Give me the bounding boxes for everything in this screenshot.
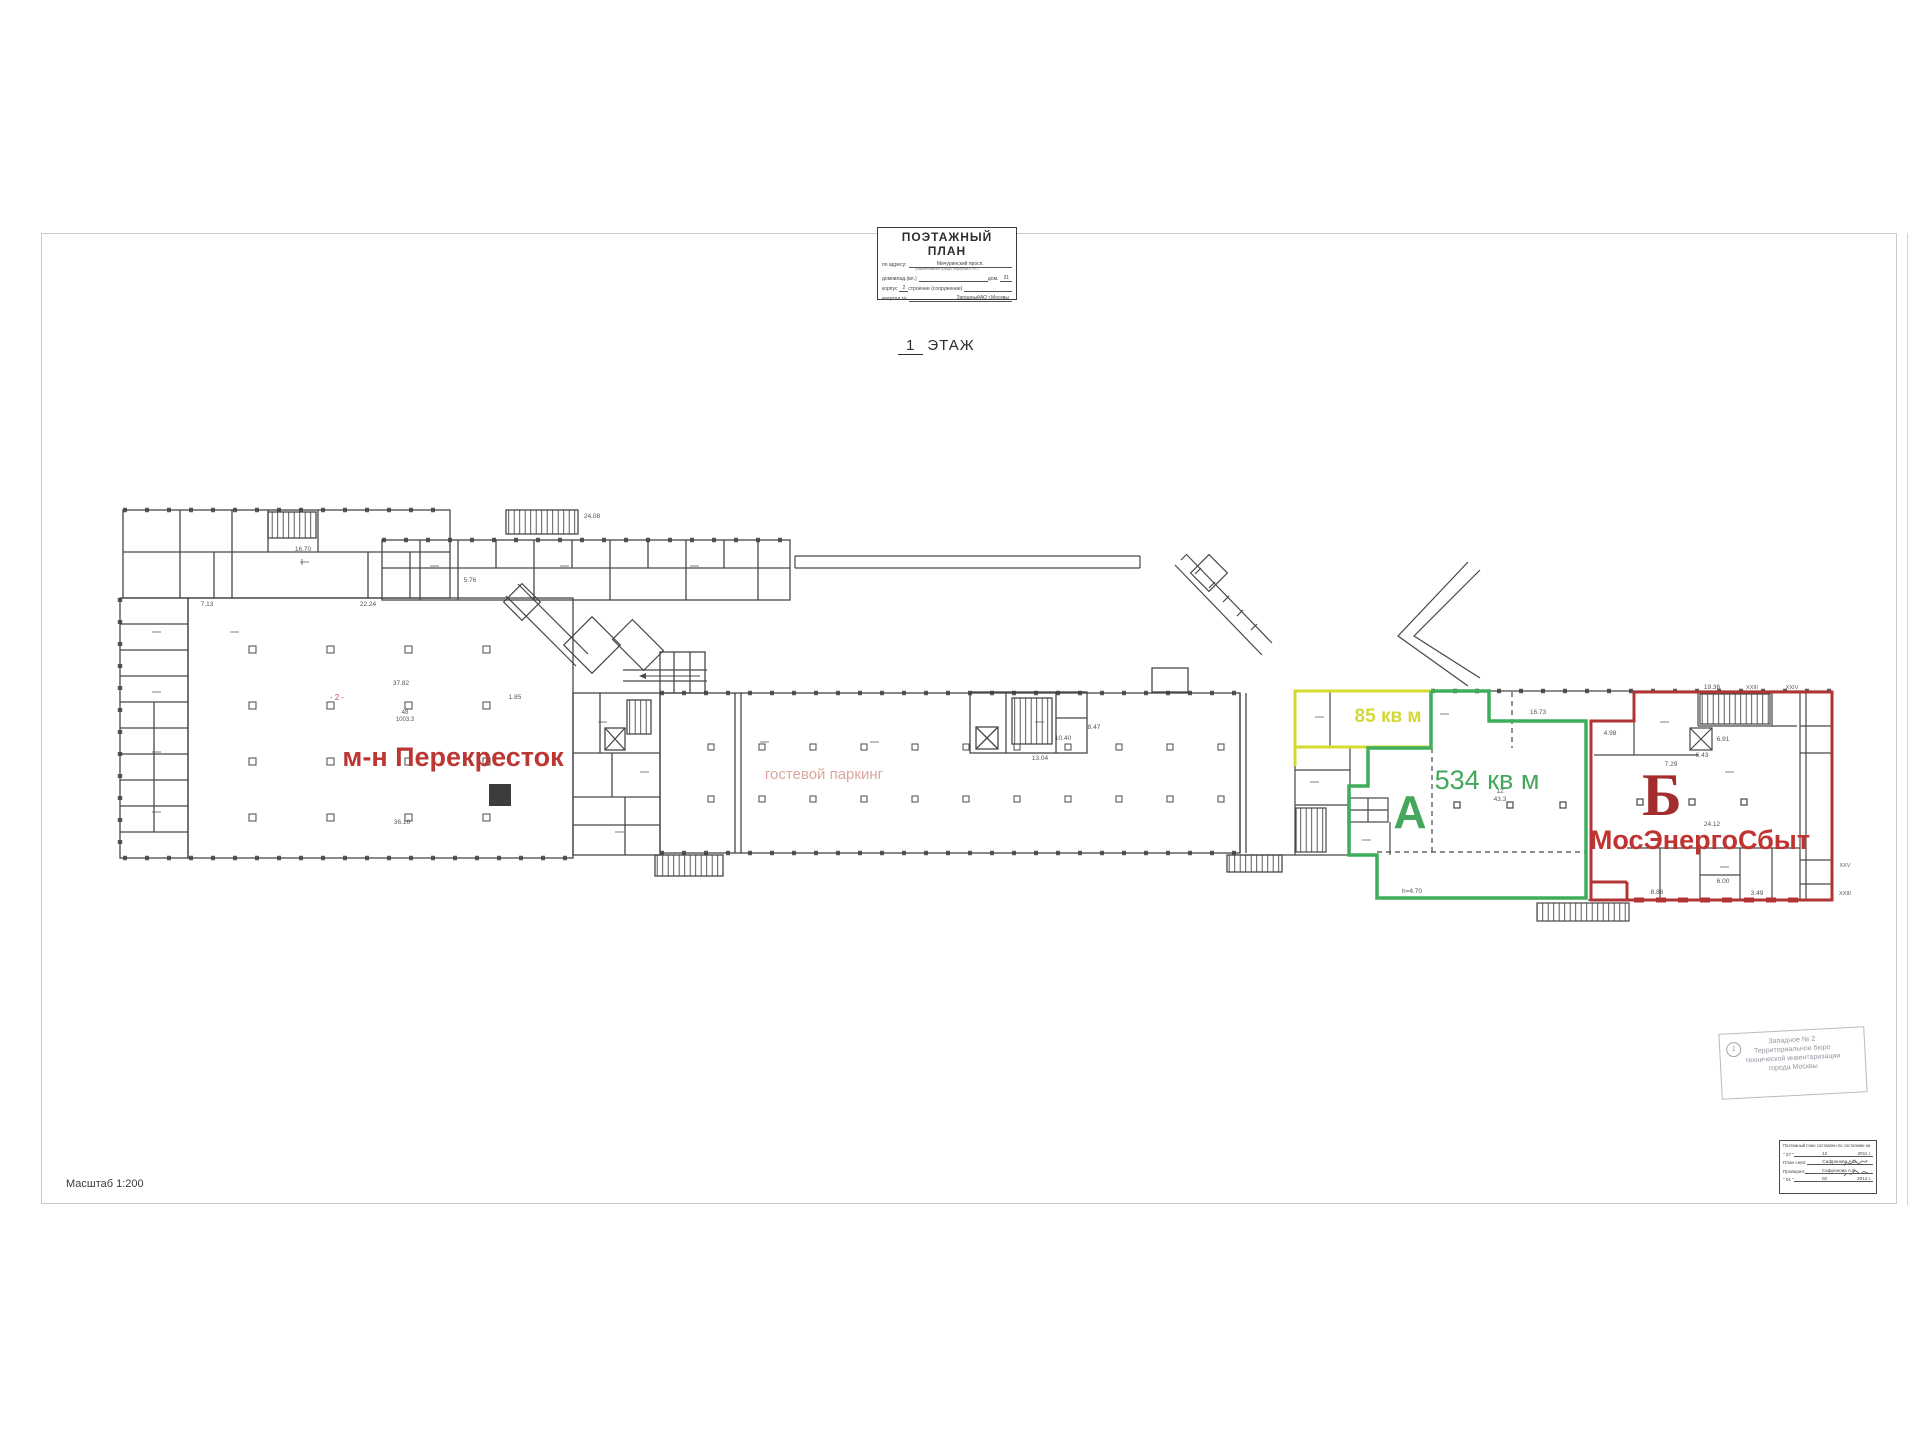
- dim-label: 7.13: [201, 601, 214, 608]
- red-mark: - 2 -: [330, 693, 345, 702]
- signoff-date1-year: 2011 г.: [1855, 1151, 1873, 1157]
- perekrestok-label: м-н Перекресток: [342, 742, 564, 772]
- dim-label: 4.98: [1604, 730, 1617, 737]
- hall-room-area: 1003.3: [396, 717, 415, 723]
- dim-label: 13.04: [1032, 755, 1049, 762]
- hall-room-number: 48: [402, 710, 409, 716]
- checker-signature: [1842, 1168, 1868, 1180]
- dim-label: 8.47: [1088, 724, 1101, 731]
- dim-label: 43.3: [1494, 796, 1507, 803]
- scanned-floor-plan-page: ПОЭТАЖНЫЙ ПЛАН по адресу: Мичуринский пр…: [0, 0, 1920, 1440]
- signoff-date1-month: 12: [1794, 1151, 1856, 1157]
- walls-parking: [655, 652, 1282, 876]
- scale-label: Масштаб 1:200: [66, 1178, 144, 1190]
- axis-label: XXIV: [1786, 685, 1799, 691]
- axis-label: XXV: [1839, 863, 1850, 869]
- dim-label: 36.16: [394, 819, 411, 826]
- section-b-letter: Б: [1642, 762, 1682, 828]
- axis-label: XXIII: [1746, 685, 1758, 691]
- dim-label: 16.73: [1530, 709, 1547, 716]
- dim-label: 24.12: [1704, 821, 1721, 828]
- dim-label: 37.82: [393, 680, 410, 687]
- dim-label: 1.85: [509, 694, 522, 701]
- signoff-date2-day: " 01 ": [1783, 1177, 1794, 1182]
- signoff-table: Поэтажный план составлен по состоянию на…: [1779, 1140, 1877, 1194]
- signoff-header: Поэтажный план составлен по состоянию на: [1783, 1143, 1873, 1148]
- surveyor-label: План снял:: [1783, 1160, 1807, 1165]
- dim-label: 6.91: [1717, 736, 1730, 743]
- area-85-outline: [1295, 691, 1431, 766]
- signoff-date1-day: " 27 ": [1783, 1152, 1794, 1157]
- dim-label: 6.00: [1717, 878, 1730, 885]
- dim-label: 22.24: [360, 601, 377, 608]
- dim-label: h=4.70: [1402, 888, 1422, 895]
- dim-label: 12: [1496, 788, 1504, 795]
- bti-stamp: 1 Западное № 2 Территориальное бюро техн…: [1718, 1026, 1867, 1100]
- walls-section-a-b: [1240, 691, 1832, 921]
- mosenergosbyt-label: МосЭнергоСбыт: [1590, 825, 1810, 855]
- walls-diagonal-entrance: [504, 554, 1480, 686]
- dim-label: 3.49: [1751, 890, 1764, 897]
- dim-label: 24.08: [584, 513, 601, 520]
- dim-label: 10.40: [1055, 735, 1072, 742]
- checker-label: Проверил:: [1783, 1169, 1805, 1174]
- floor-plan-drawing: м-н Перекресток гостевой паркинг 85 кв м…: [0, 0, 1920, 1440]
- dim-label: 5.76: [464, 577, 477, 584]
- dim-label: 6.43: [1696, 752, 1709, 759]
- area-85-label: 85 кв м: [1355, 706, 1422, 727]
- parking-label: гостевой паркинг: [765, 766, 884, 783]
- dim-label: 8.86: [1651, 889, 1664, 896]
- dim-label: 7.29: [1665, 761, 1678, 768]
- area-534-label: 534 кв м: [1435, 765, 1540, 795]
- dim-label: 16.70: [295, 546, 312, 553]
- axis-label: XXIII: [1839, 891, 1851, 897]
- dim-label: 19.36: [1704, 684, 1721, 691]
- section-a-letter: А: [1393, 786, 1426, 838]
